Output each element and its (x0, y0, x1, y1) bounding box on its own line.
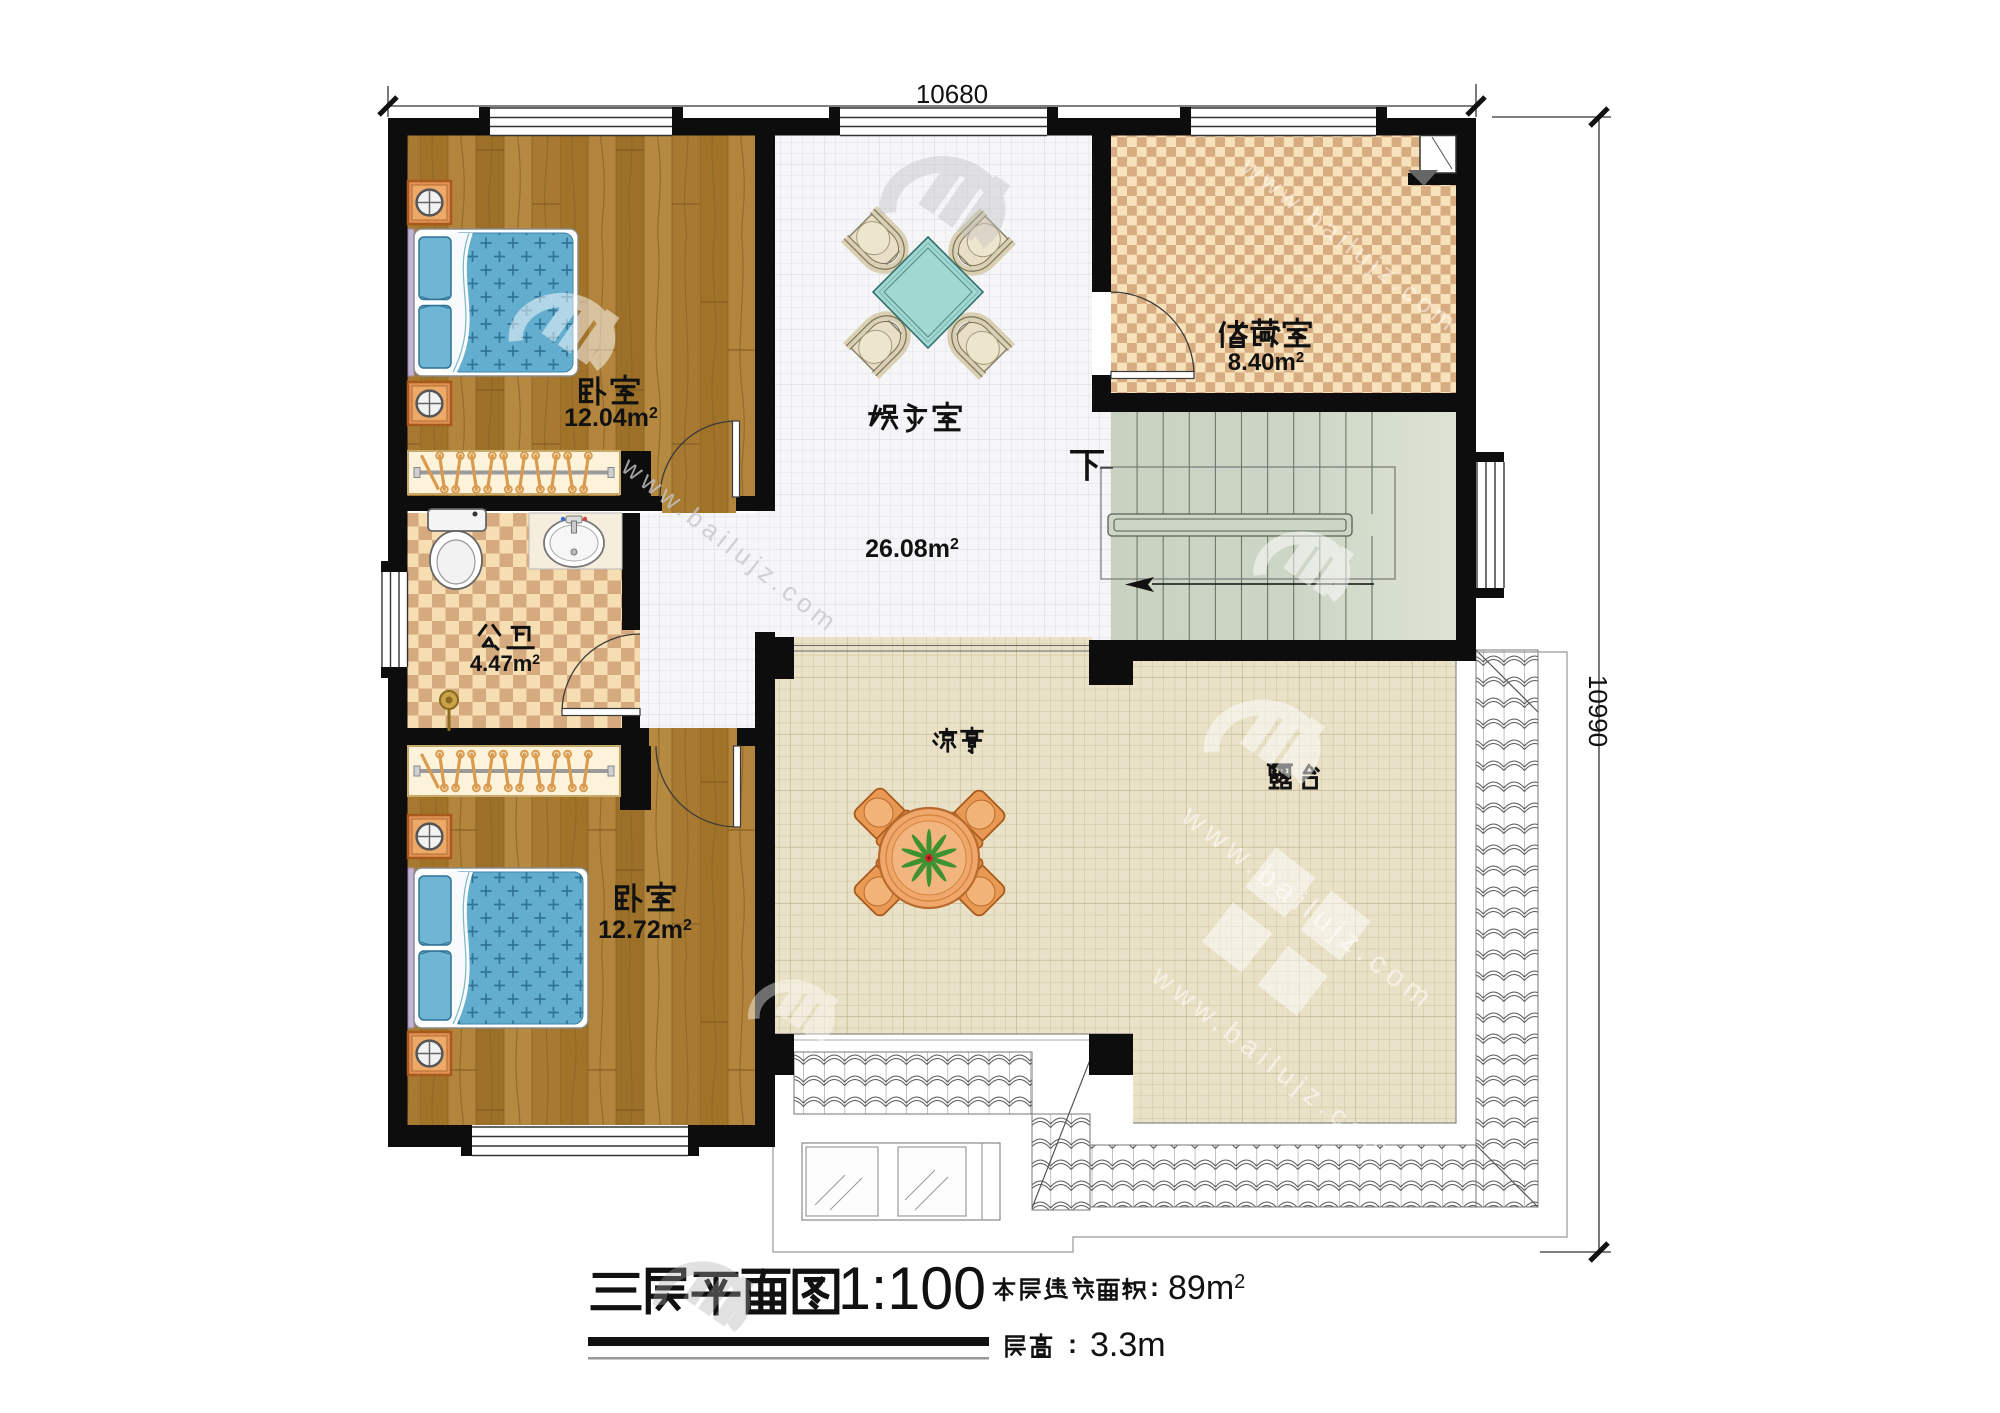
svg-text:1:100: 1:100 (838, 1255, 986, 1322)
svg-text:12.72m2: 12.72m2 (598, 916, 692, 944)
svg-text:26.08m2: 26.08m2 (865, 535, 959, 563)
svg-text::: : (1150, 1272, 1159, 1302)
svg-text::: : (1068, 1329, 1077, 1359)
svg-text:4.47m2: 4.47m2 (470, 651, 540, 676)
svg-text:8.40m2: 8.40m2 (1228, 349, 1304, 376)
svg-text:3.3m: 3.3m (1090, 1326, 1166, 1364)
svg-text:12.04m2: 12.04m2 (564, 404, 658, 432)
svg-text:10990: 10990 (1583, 675, 1613, 747)
svg-text:89m2: 89m2 (1168, 1269, 1245, 1307)
svg-text:10680: 10680 (916, 79, 988, 109)
